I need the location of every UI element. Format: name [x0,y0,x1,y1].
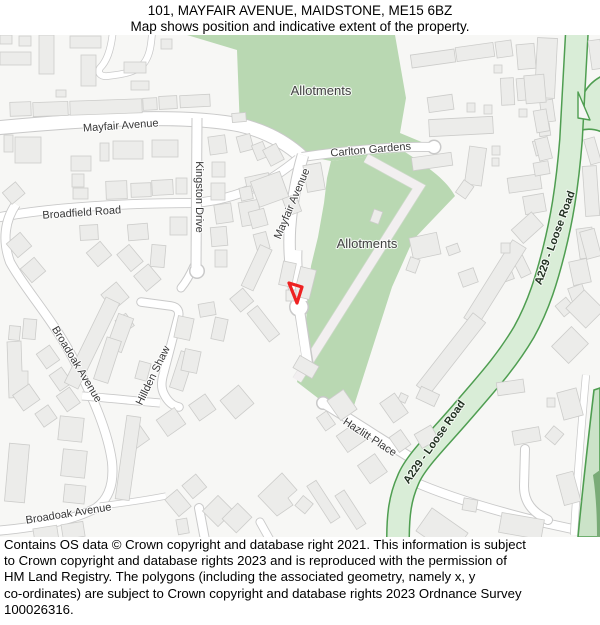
svg-text:Kingston Drive: Kingston Drive [193,161,205,233]
svg-text:Allotments: Allotments [291,83,352,98]
svg-text:Allotments: Allotments [337,236,398,251]
